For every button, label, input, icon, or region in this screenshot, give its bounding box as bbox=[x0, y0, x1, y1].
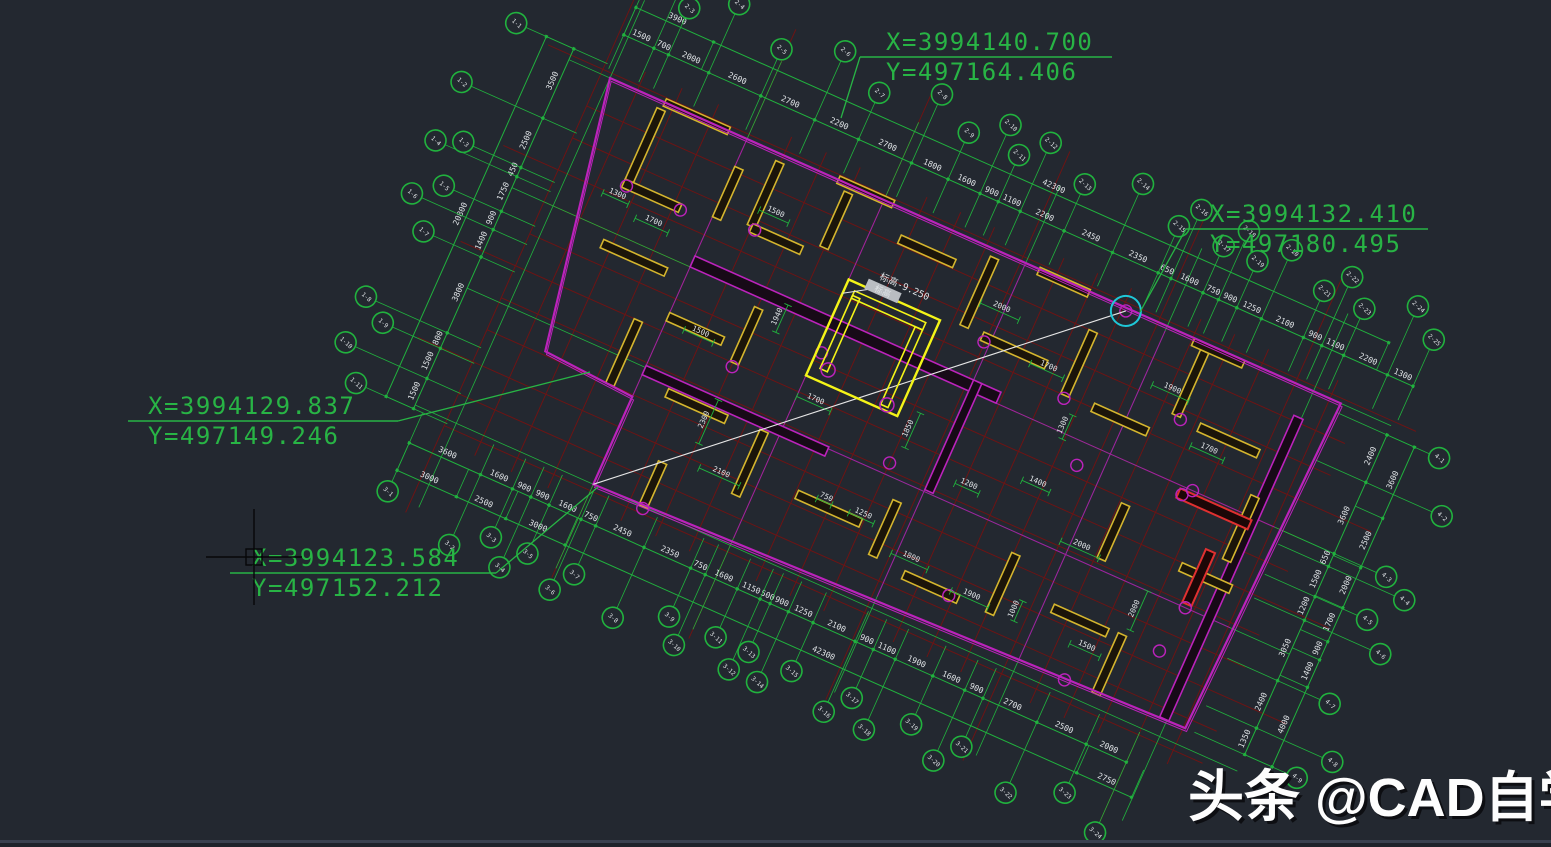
callout-y-value: Y=497149.246 bbox=[148, 422, 339, 450]
cad-drawing-canvas[interactable]: 1500700200026002700220027001800160090011… bbox=[0, 0, 1551, 847]
callout-y-value: Y=497152.212 bbox=[252, 574, 443, 602]
callout-x-value: X=3994132.410 bbox=[1210, 200, 1417, 228]
callout-x-value: X=3994140.700 bbox=[886, 28, 1093, 56]
watermark: 头条 @CAD自学吧头条 @CAD自学吧 bbox=[1188, 765, 1551, 831]
callout-x-value: X=3994129.837 bbox=[148, 392, 355, 420]
cad-viewport[interactable]: 1500700200026002700220027001800160090011… bbox=[0, 0, 1551, 847]
callout-x-value: X=3994123.584 bbox=[252, 544, 459, 572]
bottom-edge-bar bbox=[0, 840, 1551, 843]
bottom-edge-dark bbox=[0, 843, 1551, 847]
watermark-text: 头条 @CAD自学吧 bbox=[1188, 765, 1551, 828]
callout-y-value: Y=497180.495 bbox=[1210, 230, 1401, 258]
callout-y-value: Y=497164.406 bbox=[886, 58, 1077, 86]
